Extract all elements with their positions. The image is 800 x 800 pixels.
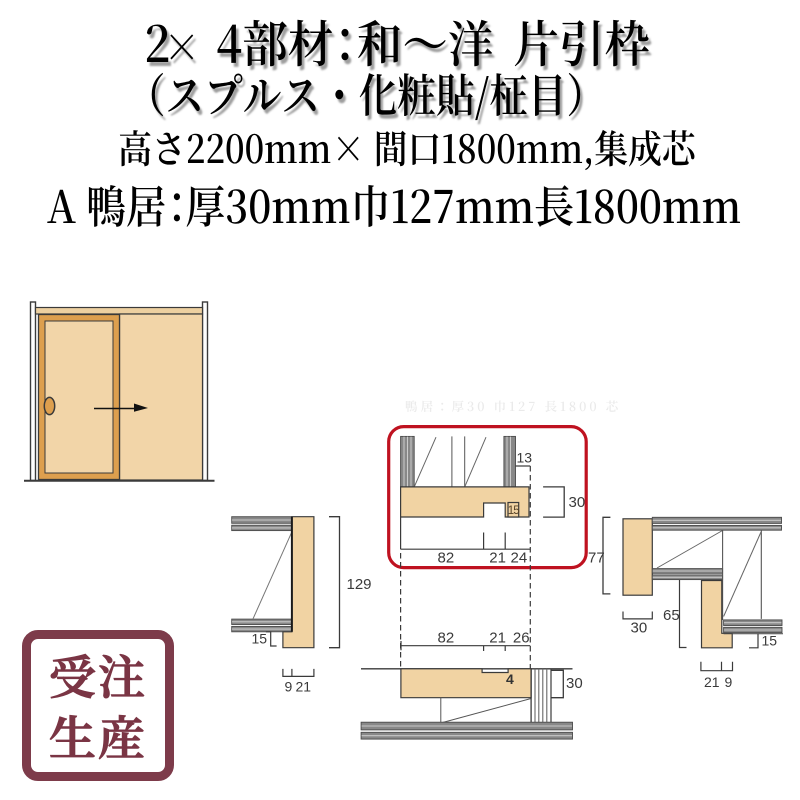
svg-text:30: 30 <box>631 620 648 637</box>
svg-text:24: 24 <box>511 550 528 567</box>
svg-text:21: 21 <box>489 630 506 647</box>
svg-text:30: 30 <box>566 675 583 692</box>
svg-text:9: 9 <box>725 674 733 690</box>
svg-text:21: 21 <box>489 550 506 567</box>
svg-text:15: 15 <box>508 505 519 517</box>
svg-text:82: 82 <box>438 550 455 567</box>
svg-text:4: 4 <box>506 671 514 687</box>
svg-text:77: 77 <box>588 550 605 567</box>
svg-text:26: 26 <box>513 630 530 647</box>
svg-text:21: 21 <box>296 679 312 695</box>
svg-text:9: 9 <box>285 679 293 695</box>
svg-text:15: 15 <box>762 633 778 649</box>
svg-text:15: 15 <box>252 631 268 647</box>
svg-text:65: 65 <box>663 607 680 624</box>
svg-text:30: 30 <box>569 494 586 511</box>
svg-text:129: 129 <box>347 576 372 593</box>
svg-text:21: 21 <box>704 674 720 690</box>
svg-text:13: 13 <box>517 450 533 466</box>
svg-text:82: 82 <box>438 630 455 647</box>
